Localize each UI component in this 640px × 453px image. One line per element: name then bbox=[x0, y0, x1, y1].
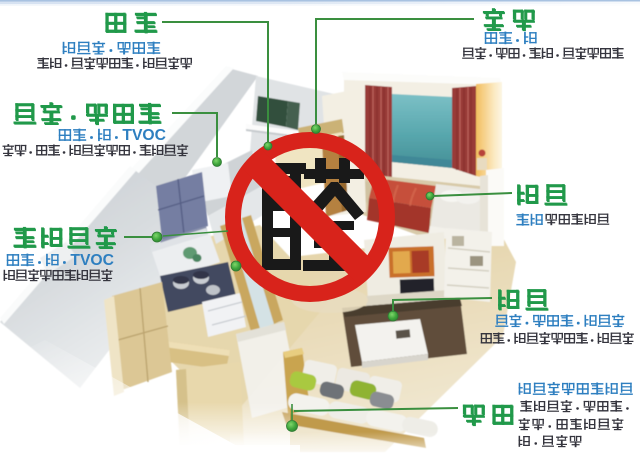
svg-text:TVOC: TVOC bbox=[122, 127, 166, 144]
svg-text:TVOC: TVOC bbox=[70, 252, 114, 269]
